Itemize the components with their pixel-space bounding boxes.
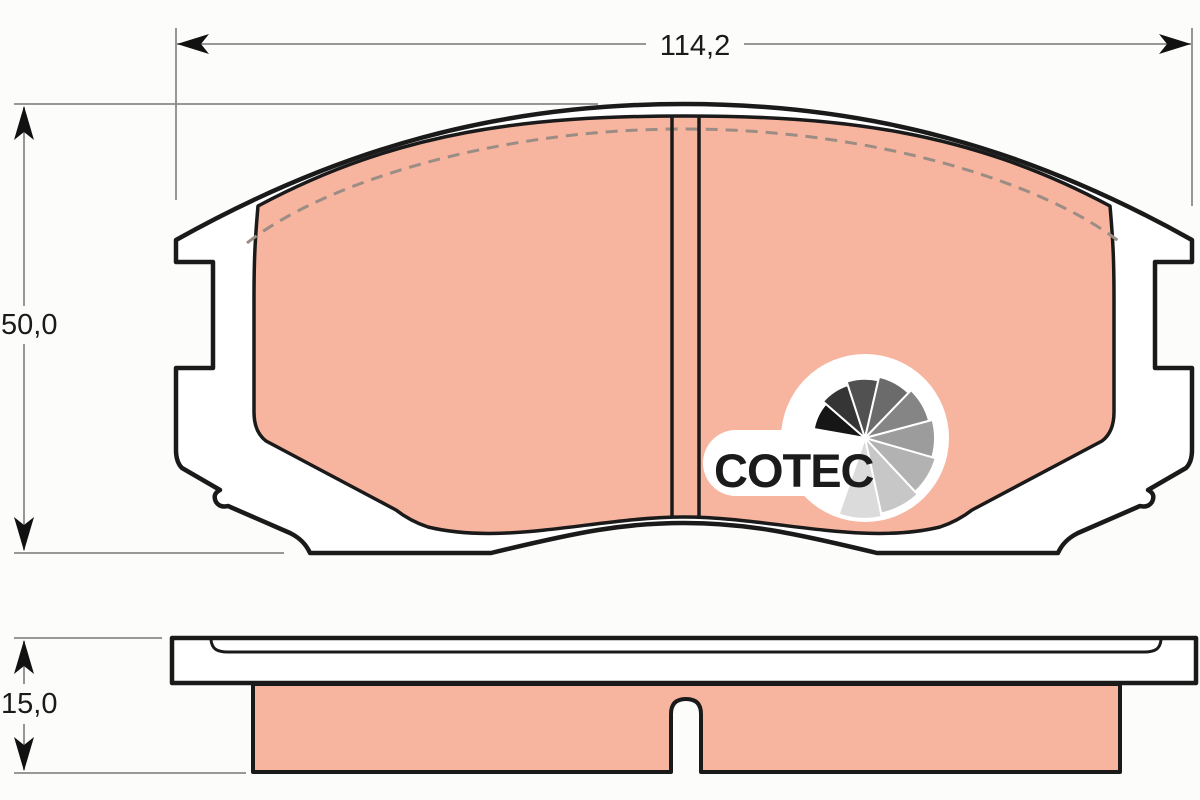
brake-pad-drawing: COTEC 114,2 50,0 15,0 [0, 0, 1200, 800]
side-view [172, 638, 1196, 772]
height-value: 50,0 [1, 309, 57, 341]
width-value: 114,2 [660, 30, 730, 62]
friction-material-front [254, 116, 1114, 533]
thickness-value: 15,0 [1, 688, 57, 720]
drawing-canvas: COTEC 114,2 50,0 15,0 [0, 0, 1200, 800]
front-view: COTEC [176, 104, 1192, 553]
logo-text: COTEC [714, 444, 874, 497]
backing-plate-side [172, 638, 1196, 683]
friction-material-side [253, 684, 1120, 772]
